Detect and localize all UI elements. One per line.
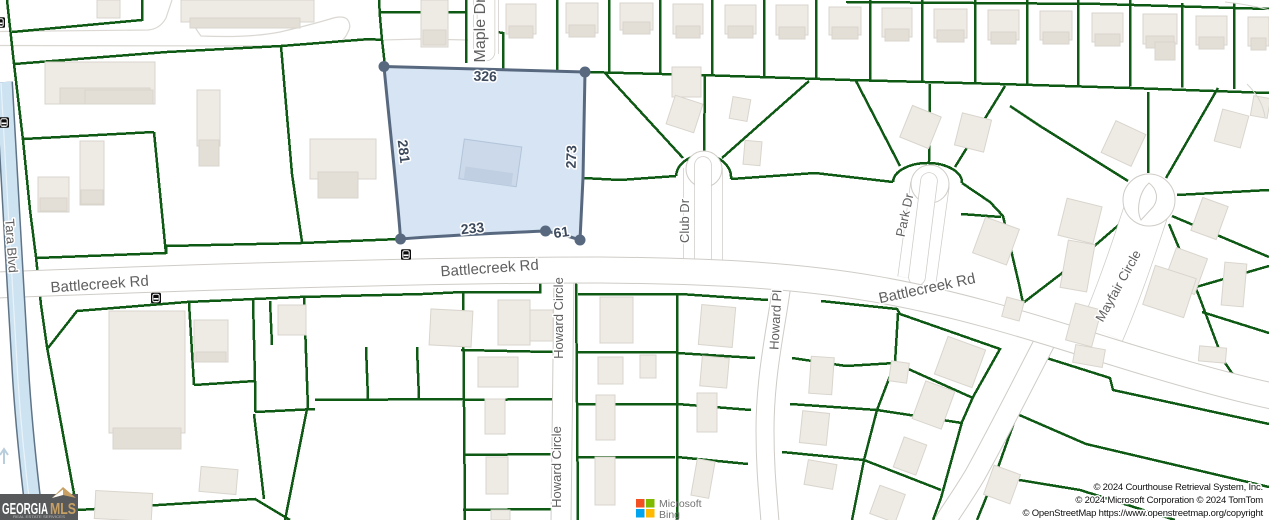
svg-text:© 2024 Courthouse Retrieval Sy: © 2024 Courthouse Retrieval System, Inc. bbox=[1093, 482, 1263, 493]
svg-text:Howard Circle: Howard Circle bbox=[551, 277, 566, 359]
svg-text:281: 281 bbox=[395, 139, 414, 164]
svg-text:REAL ESTATE SERVICES: REAL ESTATE SERVICES bbox=[13, 514, 65, 519]
svg-text:273: 273 bbox=[563, 145, 580, 169]
svg-text:© OpenStreetMap https://www.op: © OpenStreetMap https://www.openstreetma… bbox=[1023, 508, 1264, 519]
svg-text:Bing: Bing bbox=[659, 509, 680, 520]
svg-text:61: 61 bbox=[552, 223, 570, 241]
svg-text:Maple Dr: Maple Dr bbox=[472, 0, 489, 62]
svg-text:233: 233 bbox=[460, 219, 485, 237]
svg-text:Club Dr: Club Dr bbox=[677, 198, 692, 243]
svg-text:Howard Pl: Howard Pl bbox=[766, 289, 784, 350]
svg-text:326: 326 bbox=[473, 68, 497, 85]
svg-text:© 2024 Microsoft Corporation ©: © 2024 Microsoft Corporation © 2024 TomT… bbox=[1075, 495, 1263, 506]
svg-text:Howard Circle: Howard Circle bbox=[549, 426, 564, 508]
